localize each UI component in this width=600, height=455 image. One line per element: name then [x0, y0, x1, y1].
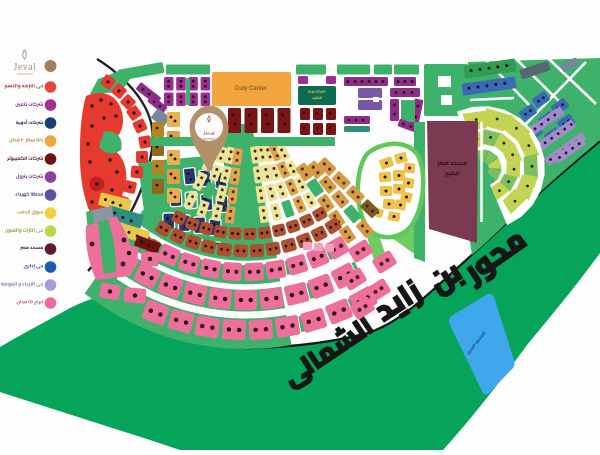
svg-text:Jeval: Jeval: [13, 62, 36, 73]
svg-text:Duty Center: Duty Center: [235, 86, 267, 92]
svg-text:Jeval: Jeval: [203, 131, 215, 137]
